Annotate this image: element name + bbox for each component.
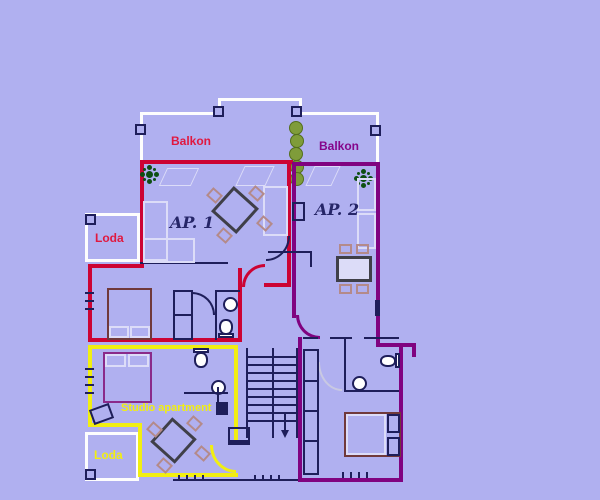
toilet-studio	[194, 352, 208, 368]
wall-ap2-terrace-stub	[412, 343, 416, 357]
bed-studio-pillow	[105, 354, 126, 367]
toilet-ap2	[380, 355, 396, 367]
wardrobe-ap2	[303, 349, 319, 475]
chair-studio	[186, 415, 203, 432]
door-arc-ap2-bath	[318, 362, 342, 391]
wall-ap1-left-lower	[88, 264, 92, 342]
balcony-post-2	[213, 106, 224, 117]
window-ticks-studio-left	[85, 384, 94, 386]
partition-ap2-hall	[330, 337, 352, 339]
loda-bottom-post	[85, 469, 96, 480]
shaft-studio	[216, 402, 228, 415]
window-ticks-studio-left	[85, 368, 94, 370]
wardrobe-ap2-divider	[303, 410, 319, 412]
window-ticks-ap1-left	[85, 308, 94, 310]
chair-ap2	[356, 244, 369, 254]
stair-arrow-line	[284, 412, 286, 432]
wardrobe-ap2-divider	[303, 440, 319, 442]
label-loda-top: Loda	[95, 231, 124, 245]
wall-studio-left-lower	[138, 423, 142, 477]
bottom-wall-ticks	[270, 475, 272, 481]
label-ap1: AP. 1	[170, 213, 214, 232]
partition-ap2-hall	[303, 337, 318, 339]
cabinet-ap2-upper	[357, 178, 376, 211]
loda-top-post	[85, 214, 96, 225]
nightstand-ap2	[387, 414, 400, 433]
balcony-rail-left	[140, 112, 218, 115]
wall-ap1-top	[140, 160, 293, 164]
balcony-post-1	[135, 124, 146, 135]
partition-hall-right	[310, 251, 312, 267]
chair-studio	[194, 445, 211, 462]
wall-studio-bottom	[138, 473, 238, 477]
terrace-ticks-ap2	[358, 472, 360, 478]
bush-icon	[289, 147, 303, 161]
wardrobe-ap1-divider	[173, 314, 193, 316]
balcony-rail-right-end	[376, 112, 379, 162]
partition-studio-horiz	[184, 392, 228, 394]
wall-ap2-bed-left	[298, 337, 302, 482]
terrace-ticks-ap2	[342, 472, 344, 478]
floorplan: Balkon Balkon AP. 1 AP. 2 Loda Loda Stud…	[0, 0, 600, 500]
partition-ap1-bath-vert	[215, 290, 217, 340]
bottom-wall-ticks	[262, 475, 264, 481]
label-balkon-right: Balkon	[319, 139, 359, 153]
bottom-wall-ticks	[194, 475, 196, 481]
label-ap2: AP. 2	[315, 200, 359, 219]
wall-ap2-right	[376, 162, 380, 347]
table-ap2	[336, 256, 372, 282]
partition-ap2-hall	[364, 337, 399, 339]
armchair-studio	[89, 403, 114, 425]
bottom-wall-ticks	[278, 475, 280, 481]
wall-ap2-left-upper	[292, 162, 296, 294]
partition-ap1-bath-horiz	[215, 290, 240, 292]
toilet-ap2-tank	[395, 353, 400, 368]
terrace-ticks-ap2	[350, 472, 352, 478]
bed-ap1-pillow	[130, 326, 150, 338]
door-arc-studio-exit	[210, 445, 236, 473]
wall-ap2-terrace	[376, 343, 416, 347]
chair-ap2	[339, 284, 352, 294]
partition-ap2-bath-vert	[344, 339, 346, 392]
label-balkon-left: Balkon	[171, 134, 211, 148]
bush-icon	[289, 121, 303, 135]
sink-ap2	[352, 376, 367, 391]
bottom-wall-ticks	[202, 475, 204, 481]
chair-ap2	[339, 244, 352, 254]
stair-arrow-icon	[281, 430, 289, 438]
door-arc-ap1-entry	[242, 264, 265, 287]
window-ap2-right	[375, 300, 380, 316]
wall-ap1-bath-right	[238, 268, 242, 342]
door-arc-ap2-entry	[296, 315, 320, 339]
stair-divider	[272, 348, 274, 438]
window-ticks-studio-left	[85, 376, 94, 378]
stairs	[246, 348, 298, 438]
toilet-ap1-tank	[218, 333, 234, 338]
balcony-rail-right	[302, 112, 379, 115]
plant-ap1-icon	[146, 171, 153, 178]
label-loda-bottom: Loda	[94, 448, 123, 462]
balcony-post-3	[291, 106, 302, 117]
bottom-wall-ticks	[186, 475, 188, 481]
window-ticks-ap1-left	[85, 300, 94, 302]
bed-ap1-pillow	[109, 326, 129, 338]
chair-ap2	[356, 284, 369, 294]
window-ticks-ap1-left	[85, 292, 94, 294]
door-arc-ap1-bedroom	[192, 292, 215, 315]
sofa-ap1-horiz	[143, 238, 195, 263]
wall-ap2-bed-bottom	[298, 478, 403, 482]
balcony-post-4	[370, 125, 381, 136]
curtain-ap2	[305, 166, 340, 186]
partition-ap2-bath-horiz	[344, 390, 399, 392]
toilet-studio-tank	[193, 348, 209, 353]
wall-ap1-jog	[90, 264, 144, 268]
sink-ap1	[223, 297, 238, 312]
tv-unit-ap2	[292, 202, 305, 221]
bush-icon	[290, 134, 304, 148]
bottom-wall-ticks	[178, 475, 180, 481]
curtain-ap1-right	[235, 166, 274, 186]
bed-ap2-mattress	[346, 414, 386, 455]
nightstand-ap2	[387, 437, 400, 456]
wall-ap1-entry	[264, 283, 291, 287]
window-ticks-studio-left	[85, 392, 94, 394]
bed-studio-pillow	[128, 354, 149, 367]
wardrobe-ap2-divider	[303, 380, 319, 382]
wall-studio-top	[88, 345, 238, 349]
balcony-rail-left-end	[140, 112, 143, 162]
label-studio: Studio apartment	[121, 402, 211, 414]
curtain-ap1-left	[159, 168, 199, 186]
bay-window-outline	[218, 98, 302, 115]
bottom-wall-ticks	[254, 475, 256, 481]
terrace-ticks-ap2	[366, 472, 368, 478]
